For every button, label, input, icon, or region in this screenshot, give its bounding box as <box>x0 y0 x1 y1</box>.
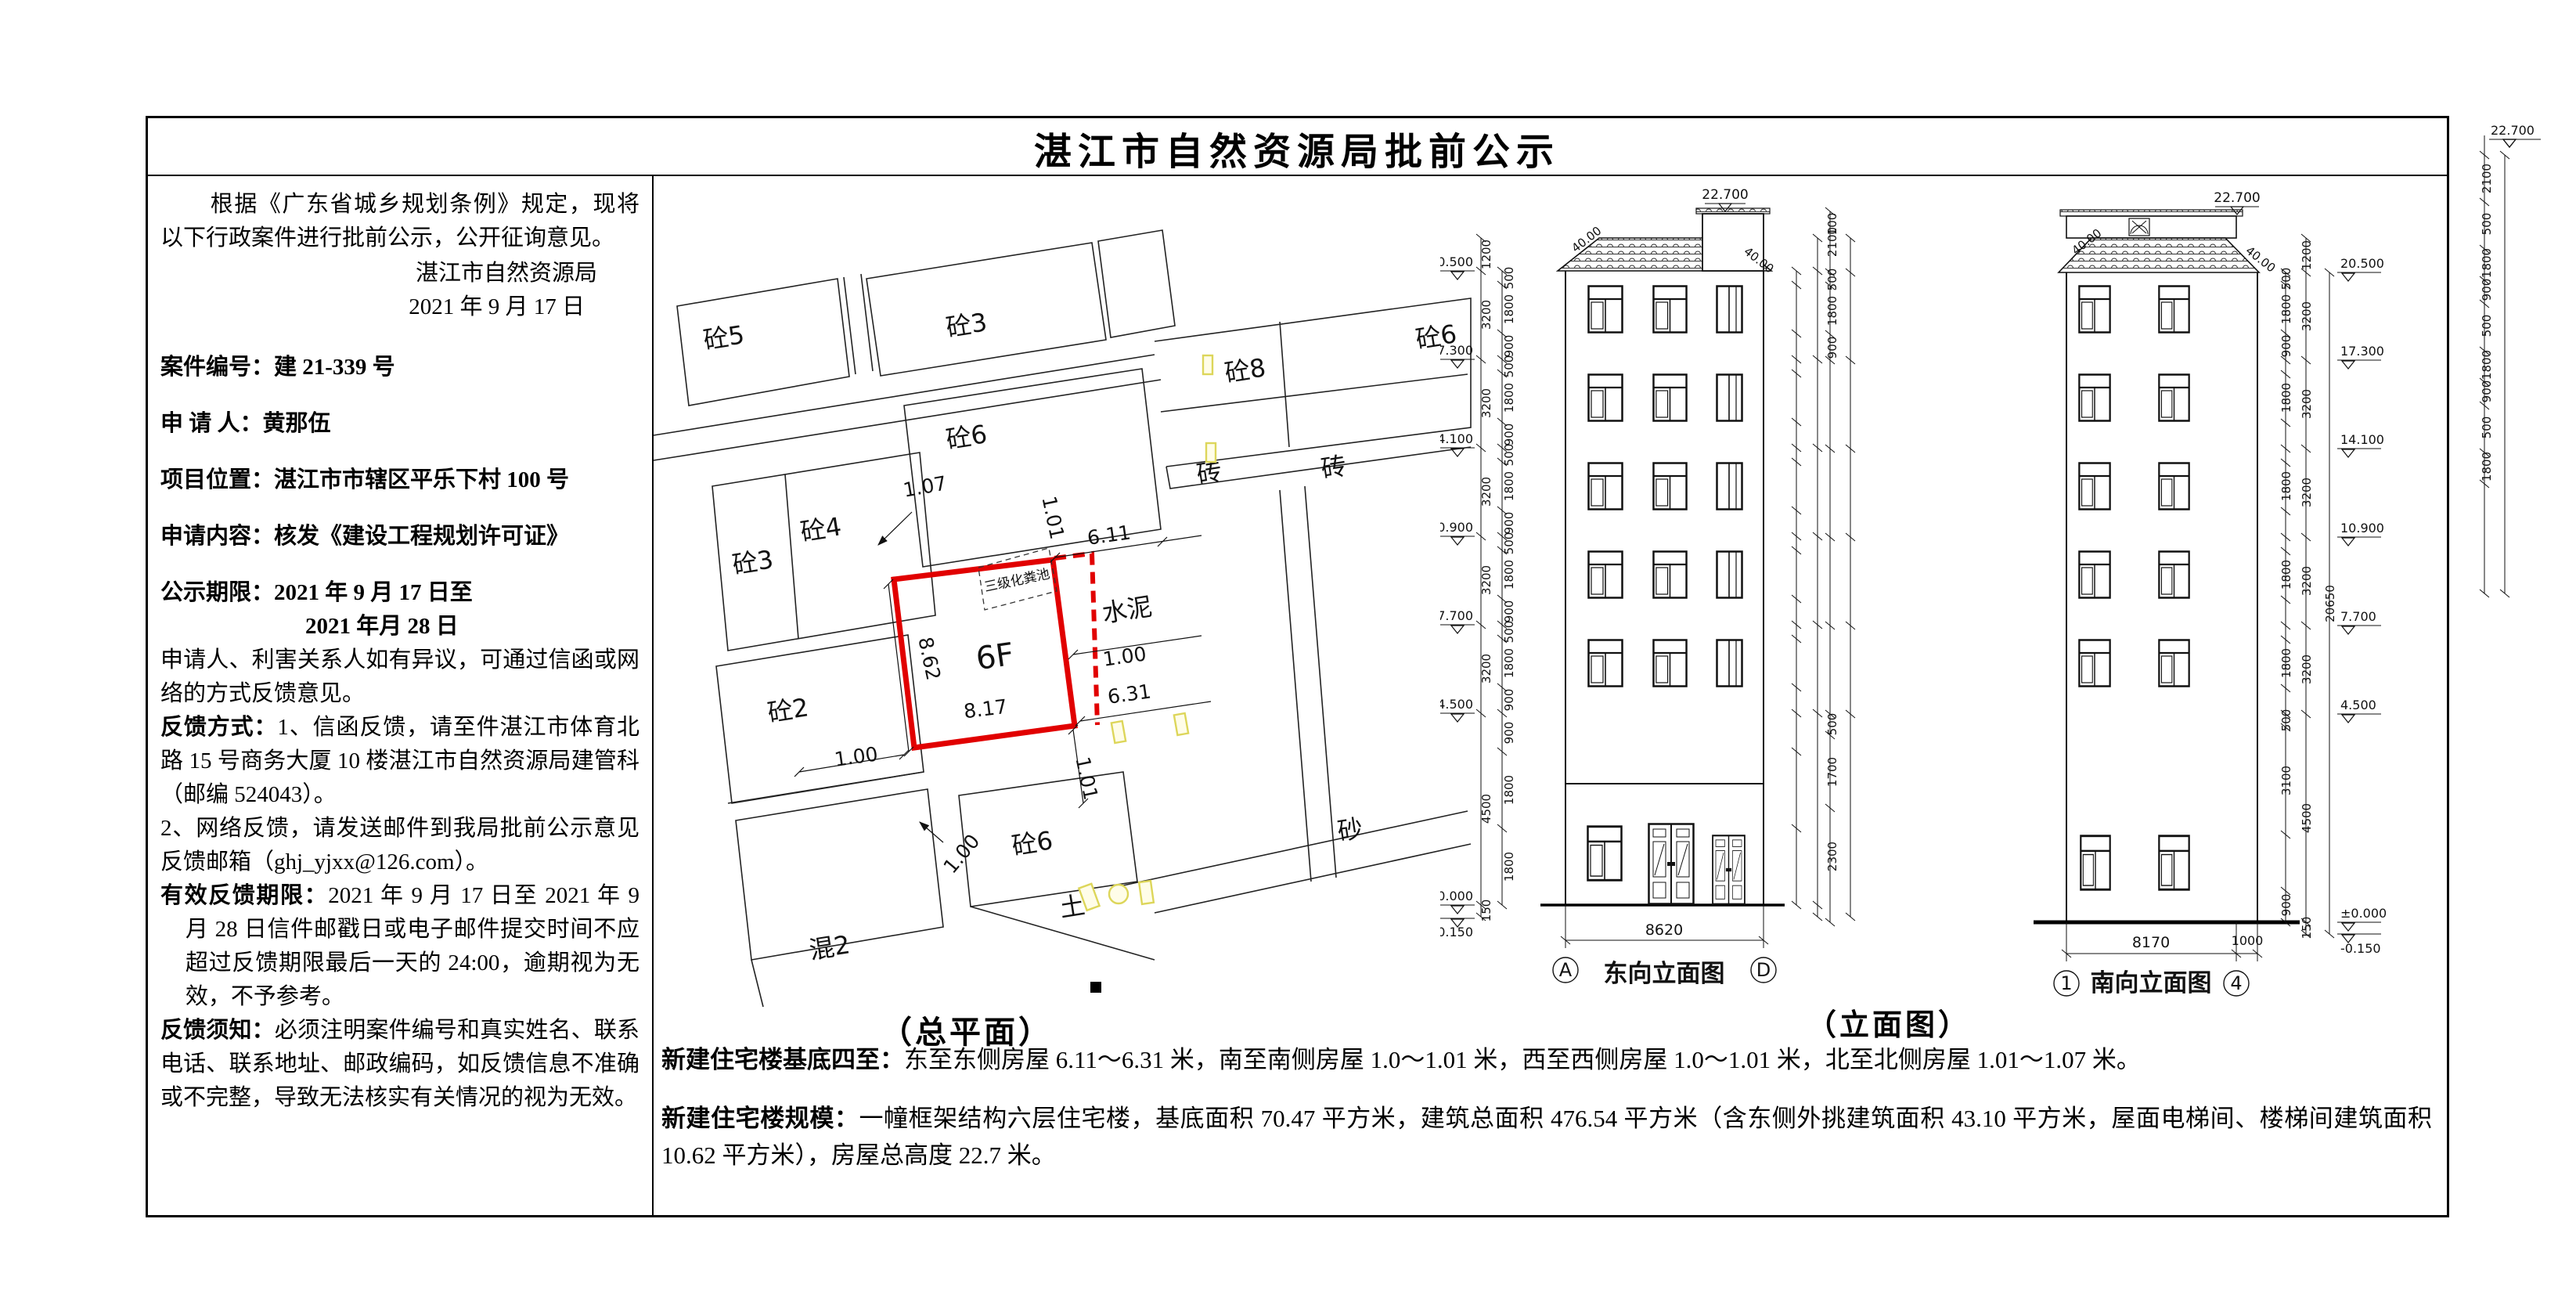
south-right-levels: 20.500 17.300 14.100 10.900 7.700 4.500 … <box>2340 256 2387 956</box>
svg-text:3200: 3200 <box>1479 565 1493 595</box>
dim-text: 8.62 <box>913 635 945 682</box>
svg-text:1800: 1800 <box>2480 248 2494 278</box>
svg-text:500: 500 <box>1825 269 1839 291</box>
svg-text:3200: 3200 <box>1479 477 1493 507</box>
field-content: 申请内容：核发《建设工程规划许可证》 <box>160 520 639 554</box>
pole-icon <box>1111 721 1126 743</box>
svg-text:1800: 1800 <box>1502 560 1516 590</box>
parcel-label: 砂 <box>1335 813 1365 847</box>
level-text: -0.150 <box>2340 941 2381 956</box>
issuing-authority: 湛江市自然资源局 <box>160 257 639 290</box>
svg-text:1800: 1800 <box>1502 852 1516 882</box>
plot-floors-label: 6F <box>974 636 1016 677</box>
pole-icon <box>1203 355 1212 374</box>
field-applicant: 申 请 人：黄那伍 <box>160 407 639 441</box>
overhang-dim-text: 1000 <box>2232 933 2264 948</box>
svg-text:900: 900 <box>2279 894 2293 917</box>
south-elevation-caption: 南向立面图 <box>2091 969 2212 997</box>
valid-period-paragraph: 有效反馈期限：2021 年 9 月 17 日至 2021 年 9 月 28 日信… <box>160 879 639 1014</box>
svg-text:500: 500 <box>2279 709 2293 732</box>
parcel-label: 砼2 <box>766 692 811 728</box>
pole-icon <box>1139 881 1154 904</box>
level-text: 10.900 <box>2340 521 2384 536</box>
svg-text:4500: 4500 <box>2300 803 2314 833</box>
svg-text:4500: 4500 <box>1479 794 1493 824</box>
dim-text: 1.00 <box>1101 642 1147 670</box>
level-text: 22.700 <box>1702 187 1748 203</box>
svg-text:500: 500 <box>2480 417 2494 439</box>
dim-text: 1.01 <box>1071 755 1102 802</box>
svg-text:1200: 1200 <box>2300 240 2314 270</box>
site-plan-drawing: 三级化粪池 6F 1.07 1.01 6.11 1.00 6.31 8.62 8… <box>654 177 1472 1030</box>
svg-text:1800: 1800 <box>2279 560 2293 590</box>
parcel-label: 砼4 <box>798 511 844 547</box>
pole-icon <box>1174 713 1188 735</box>
svg-text:500: 500 <box>1502 621 1516 644</box>
svg-text:3200: 3200 <box>2300 478 2314 507</box>
building-description: 新建住宅楼基底四至：东至东侧房屋 6.11～6.31 米，南至南侧房屋 1.0～… <box>661 1041 2432 1174</box>
parcel-label: 砼8 <box>1223 352 1268 388</box>
frame-top <box>146 116 2449 118</box>
svg-text:150: 150 <box>1479 900 1493 922</box>
extent-paragraph: 新建住宅楼基底四至：东至东侧房屋 6.11～6.31 米，南至南侧房屋 1.0～… <box>661 1041 2432 1078</box>
svg-text:1800: 1800 <box>2480 350 2494 380</box>
dim-text: 6.31 <box>1106 680 1152 708</box>
svg-text:500: 500 <box>2480 213 2494 236</box>
svg-text:1800: 1800 <box>2279 294 2293 324</box>
east-elevation-caption: 东向立面图 <box>1604 960 1725 988</box>
level-text: 22.700 <box>2214 190 2260 206</box>
east-right-dim-chain <box>1792 234 1822 921</box>
svg-text:2100: 2100 <box>1825 227 1839 257</box>
dim-text: 6.11 <box>1086 521 1132 549</box>
level-text: 4.500 <box>1440 697 1473 712</box>
survey-point <box>1090 982 1101 993</box>
dim-text: 1.00 <box>939 830 984 878</box>
svg-text:1800: 1800 <box>2480 452 2494 481</box>
svg-text:2300: 2300 <box>1825 842 1839 871</box>
south-left-dim-texts: 100 2100 500 1800 900 500 1700 2300 <box>1825 213 1839 871</box>
svg-text:3200: 3200 <box>2300 389 2314 419</box>
svg-text:1800: 1800 <box>2279 648 2293 678</box>
level-text: 17.300 <box>1440 343 1473 358</box>
page-title: 湛江市自然资源局批前公示 <box>146 121 2448 175</box>
dim-text: 1.01 <box>1037 494 1068 541</box>
overall-dim-text: 20650 <box>2323 585 2337 622</box>
svg-text:3200: 3200 <box>1479 654 1493 683</box>
elevations-caption: （立面图） <box>1807 1001 1971 1044</box>
east-left-levels: 20.500 17.300 14.100 10.900 7.700 4.500 … <box>1440 254 1473 939</box>
svg-text:1800: 1800 <box>1502 383 1516 413</box>
overflow-dim-texts: 2100 500 1800 900 500 1800 900 500 1800 <box>2480 164 2494 481</box>
svg-text:500: 500 <box>2480 315 2494 337</box>
level-text: ±0.000 <box>1440 889 1473 903</box>
svg-text:500: 500 <box>1825 713 1839 736</box>
svg-text:500: 500 <box>2279 268 2293 290</box>
field-case-no: 案件编号：建 21-339 号 <box>160 351 639 384</box>
svg-text:1800: 1800 <box>1502 775 1516 805</box>
dim-text: 1.07 <box>902 472 949 502</box>
level-text: 20.500 <box>2340 256 2384 271</box>
svg-text:1800: 1800 <box>1502 294 1516 324</box>
elevation-drawings: 22.700 40.00 40.00 <box>1440 177 2448 1030</box>
level-text: 4.500 <box>2340 698 2376 712</box>
level-text: 14.100 <box>1440 431 1473 446</box>
axis-label: 1 <box>2060 972 2072 994</box>
width-dim-text: 8170 <box>2132 934 2170 951</box>
east-bottom: 8620 A D 东向立面图 <box>1553 905 1776 988</box>
south-right-dim-texts: 500 1800 900 1800 1800 1800 1800 500 310… <box>2279 240 2337 939</box>
level-text: 22.700 <box>2491 124 2535 138</box>
svg-text:900: 900 <box>2480 279 2494 301</box>
svg-text:900: 900 <box>1502 600 1516 623</box>
announcement-panel: 根据《广东省城乡规划条例》规定，现将以下行政案件进行批前公示，公开征询意见。 湛… <box>148 177 650 1115</box>
east-left-dim-chain <box>1440 234 1507 921</box>
axis-label: 4 <box>2230 972 2242 994</box>
width-dim-text: 8620 <box>1645 921 1683 939</box>
svg-text:500: 500 <box>1502 532 1516 555</box>
svg-text:900: 900 <box>1502 512 1516 535</box>
parcel-label: 砼5 <box>701 319 747 355</box>
east-windows <box>1588 287 1745 904</box>
east-left-dim-texts: 1200 3200 3200 3200 3200 3200 4500 150 5… <box>1479 240 1516 921</box>
south-windows <box>2079 287 2189 890</box>
svg-text:500: 500 <box>1502 444 1516 467</box>
svg-text:2100: 2100 <box>2480 164 2494 193</box>
axis-label: D <box>1756 959 1771 981</box>
level-text: ±0.000 <box>2340 906 2387 921</box>
svg-text:900: 900 <box>1825 337 1839 359</box>
svg-text:150: 150 <box>2300 917 2314 939</box>
utility-pole-markers <box>1079 355 1216 911</box>
svg-text:900: 900 <box>1502 335 1516 358</box>
parcel-label: 砖 <box>1319 451 1349 485</box>
notice-paragraph: 反馈须知：必须注明案件编号和真实姓名、联系电话、联系地址、邮政编码，如反馈信息不… <box>160 1014 639 1115</box>
level-text: 20.500 <box>1440 254 1473 269</box>
level-text: 7.700 <box>2340 609 2376 624</box>
svg-text:900: 900 <box>2279 335 2293 358</box>
svg-text:1800: 1800 <box>1502 471 1516 501</box>
field-period-line2: 2021 年月 28 日 <box>305 610 639 644</box>
svg-text:900: 900 <box>1502 689 1516 712</box>
svg-text:1800: 1800 <box>2279 471 2293 501</box>
parcel-label: 砼6 <box>1010 825 1055 861</box>
feedback-method-2: 2、网络反馈，请发送邮件到我局批前公示意见反馈邮箱（ghj_yjxx@126.c… <box>160 812 639 879</box>
svg-text:3200: 3200 <box>1479 300 1493 330</box>
frame-bottom <box>146 1215 2449 1217</box>
intro-paragraph: 根据《广东省城乡规划条例》规定，现将以下行政案件进行批前公示，公开征询意见。 <box>160 188 639 255</box>
overflow-dim-strip: 22.700 2100 500 1800 900 500 1800 900 50… <box>2455 124 2574 609</box>
svg-text:500: 500 <box>1502 355 1516 378</box>
level-text: 17.300 <box>2340 344 2384 359</box>
scale-paragraph: 新建住宅楼规模：一幢框架结构六层住宅楼，基底面积 70.47 平方米，建筑总面积… <box>661 1100 2432 1174</box>
svg-text:3200: 3200 <box>2300 566 2314 596</box>
well-icon <box>1109 885 1128 903</box>
pole-icon <box>1206 443 1216 462</box>
dim-text: 1.00 <box>833 742 879 770</box>
parcel-label: 混2 <box>807 929 852 965</box>
level-text: 10.900 <box>1440 520 1473 535</box>
parcel-label: 砼3 <box>944 307 989 343</box>
level-text: 14.100 <box>2340 432 2384 447</box>
svg-text:3200: 3200 <box>2300 301 2314 331</box>
feedback-method-paragraph: 反馈方式：1、信函反馈，请至件湛江市体育北路 15 号商务大厦 10 楼湛江市自… <box>160 711 639 812</box>
svg-text:1200: 1200 <box>1479 240 1493 269</box>
svg-text:1800: 1800 <box>1825 296 1839 326</box>
level-text: -0.150 <box>1440 925 1473 939</box>
dim-text: 8.17 <box>963 695 1009 723</box>
east-side-door <box>1713 835 1745 903</box>
svg-text:900: 900 <box>1502 424 1516 446</box>
south-bottom: 8170 1000 1 4 南向立面图 <box>2054 922 2263 997</box>
objection-paragraph: 申请人、利害关系人如有异议，可通过信函或网络的方式反馈意见。 <box>160 644 639 711</box>
field-period: 公示期限：2021 年 9 月 17 日至 2021 年月 28 日 <box>160 576 639 644</box>
field-location: 项目位置：湛江市市辖区平乐下村 100 号 <box>160 463 639 497</box>
svg-text:1800: 1800 <box>1502 648 1516 678</box>
parcel-label: 砼6 <box>944 419 989 455</box>
parcel-label: 砼3 <box>730 544 776 580</box>
septic-tank-label: 三级化粪池 <box>983 566 1051 595</box>
svg-text:500: 500 <box>1502 267 1516 290</box>
east-entry-door <box>1649 824 1694 904</box>
parcel-label: 水泥 <box>1100 591 1154 629</box>
south-elevation: 22.700 40.00 40.00 <box>2034 190 2387 997</box>
svg-text:3200: 3200 <box>1479 388 1493 418</box>
svg-text:900: 900 <box>1502 722 1516 745</box>
issue-date: 2021 年 9 月 17 日 <box>160 290 639 324</box>
axis-label: A <box>1559 959 1573 981</box>
svg-text:3200: 3200 <box>2300 655 2314 684</box>
east-elevation: 22.700 40.00 40.00 <box>1440 187 1855 988</box>
svg-text:1800: 1800 <box>2279 383 2293 413</box>
svg-text:1700: 1700 <box>1825 757 1839 787</box>
site-dim-lines <box>794 512 1211 842</box>
level-text: 7.700 <box>1440 608 1473 623</box>
svg-text:3100: 3100 <box>2279 766 2293 795</box>
svg-text:900: 900 <box>2480 380 2494 403</box>
announcement-sheet: 湛江市自然资源局批前公示 根据《广东省城乡规划条例》规定，现将以下行政案件进行批… <box>0 0 2576 1291</box>
